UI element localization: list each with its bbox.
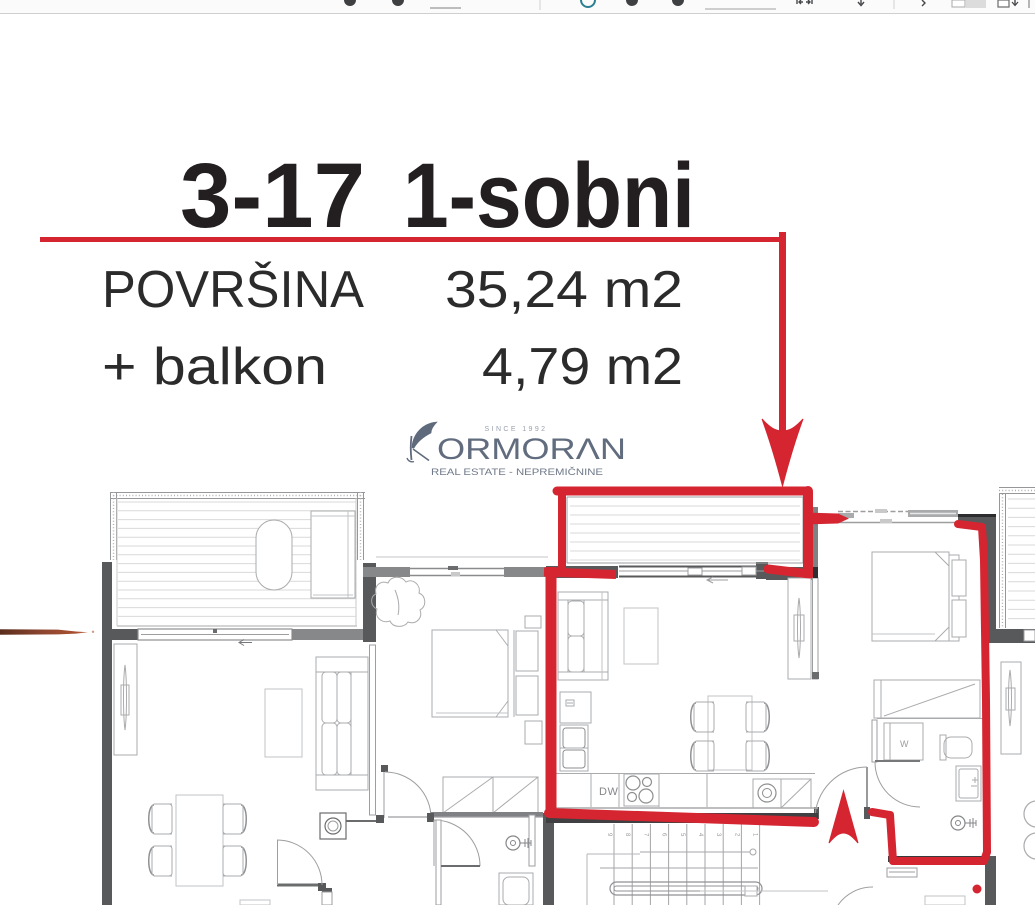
svg-text:DW: DW <box>599 786 618 798</box>
svg-text:W: W <box>900 739 909 749</box>
svg-text:SINCE 1992: SINCE 1992 <box>485 426 548 433</box>
svg-text:ORMORΛN: ORMORΛN <box>437 433 626 466</box>
svg-text:4,79 m2: 4,79 m2 <box>482 338 683 396</box>
svg-text:REAL ESTATE - NEPREMIČNINE: REAL ESTATE - NEPREMIČNINE <box>431 467 603 477</box>
svg-text:3-17: 3-17 <box>180 145 365 247</box>
svg-text:35,24 m2: 35,24 m2 <box>445 261 683 319</box>
svg-text:POVRŠINA: POVRŠINA <box>102 261 364 319</box>
svg-text:+ balkon: + balkon <box>102 338 327 396</box>
svg-text:1-sobni: 1-sobni <box>403 145 695 247</box>
